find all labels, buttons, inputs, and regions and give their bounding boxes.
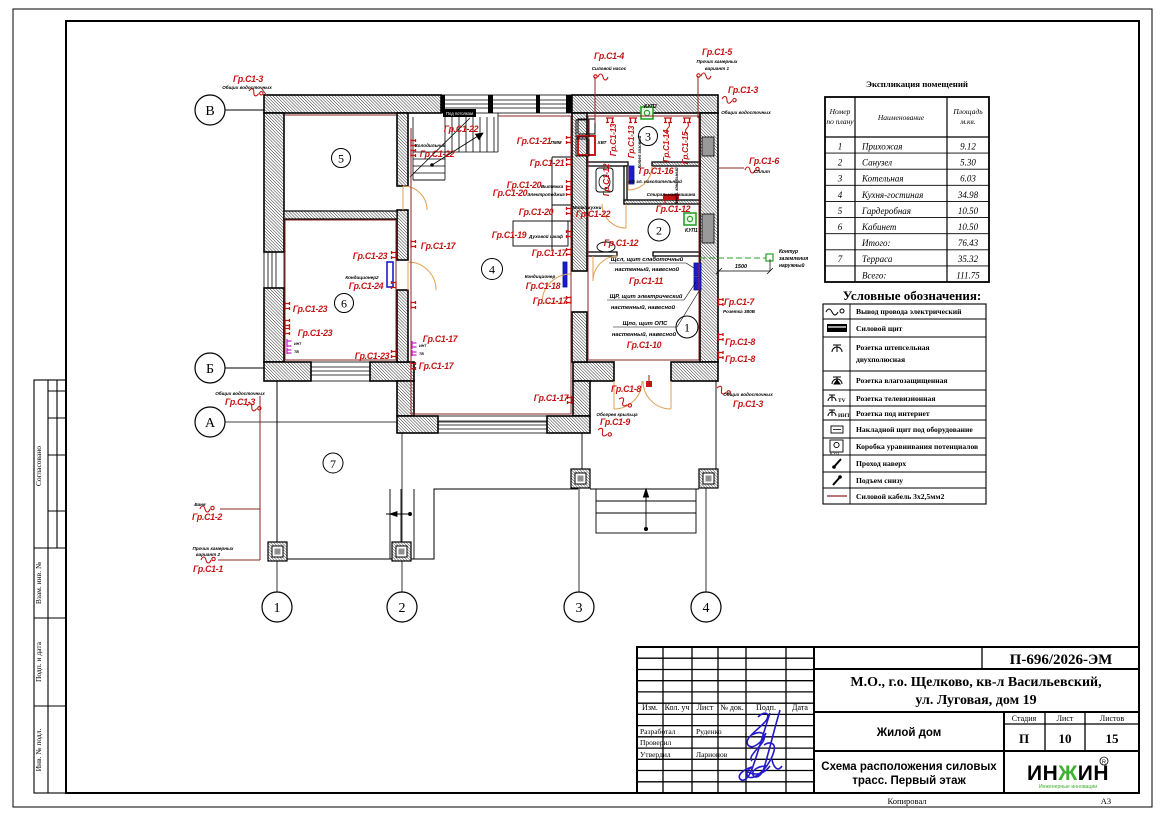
svg-text:1500: 1500 (735, 264, 747, 270)
svg-text:6: 6 (341, 297, 347, 311)
svg-text:Гр.С1-17: Гр.С1-17 (423, 334, 459, 344)
svg-text:Кол. уч: Кол. уч (665, 703, 690, 712)
svg-text:Баня: Баня (194, 502, 206, 507)
svg-text:2: 2 (838, 158, 843, 168)
svg-text:Силовой кабель 3х2,5мм2: Силовой кабель 3х2,5мм2 (856, 492, 945, 501)
svg-text:Гр.С1-22: Гр.С1-22 (576, 209, 611, 219)
svg-text:Котельная: Котельная (861, 174, 904, 184)
svg-text:№ док.: № док. (720, 703, 744, 712)
svg-text:настенный, навесной: настенный, навесной (611, 304, 676, 311)
svg-text:Вытяжка: Вытяжка (541, 184, 564, 189)
svg-text:Гр.С1-12: Гр.С1-12 (604, 238, 639, 248)
svg-text:Гр.С1-11: Гр.С1-11 (629, 276, 663, 286)
svg-text:Вент. канальный: Вент. канальный (674, 167, 679, 204)
svg-text:ТВ: ТВ (294, 350, 299, 354)
svg-text:Кондиционер: Кондиционер (525, 274, 556, 279)
svg-text:Общих водосточных: Общих водосточных (721, 109, 771, 115)
svg-text:111.75: 111.75 (956, 270, 980, 280)
svg-text:Подп. и дата: Подп. и дата (34, 641, 43, 682)
svg-text:ИНТ: ИНТ (294, 342, 302, 346)
svg-text:Контур: Контур (779, 249, 798, 255)
svg-text:Кабинет: Кабинет (861, 222, 897, 232)
svg-text:6.03: 6.03 (960, 174, 976, 184)
svg-text:Гр.С1-17: Гр.С1-17 (533, 296, 569, 306)
svg-text:Проход наверх: Проход наверх (856, 459, 906, 468)
svg-text:6: 6 (838, 222, 843, 232)
svg-text:Гр.С1-12: Гр.С1-12 (601, 163, 611, 196)
svg-text:вариант 1: вариант 1 (705, 66, 730, 71)
svg-text:Гр.С1-3: Гр.С1-3 (225, 397, 255, 407)
svg-text:Гр.С1-8: Гр.С1-8 (611, 384, 641, 394)
svg-text:вариант 2: вариант 2 (196, 552, 221, 557)
svg-text:А3: А3 (1101, 796, 1111, 806)
svg-text:Вывод провода электрический: Вывод провода электрический (856, 307, 962, 316)
svg-text:заземления: заземления (779, 256, 808, 262)
svg-text:Розетка телевизионная: Розетка телевизионная (856, 394, 935, 403)
svg-text:наружный: наружный (779, 262, 805, 269)
svg-text:Утвердил: Утвердил (640, 750, 671, 759)
svg-text:15: 15 (1106, 731, 1120, 746)
svg-text:Жилой дом: Жилой дом (876, 727, 942, 739)
svg-text:Общих водосточных: Общих водосточных (222, 84, 272, 90)
svg-text:Гр.С1-1: Гр.С1-1 (193, 564, 223, 574)
svg-text:3: 3 (837, 174, 843, 184)
svg-text:ХВТ: ХВТ (597, 140, 608, 145)
svg-text:Гр.С1-17: Гр.С1-17 (421, 241, 457, 251)
svg-text:Прихожая: Прихожая (861, 142, 902, 152)
svg-text:Гр.С1-13: Гр.С1-13 (608, 123, 618, 156)
svg-text:Гр.С1-17: Гр.С1-17 (534, 393, 570, 403)
svg-text:Силовой щит: Силовой щит (856, 324, 903, 333)
svg-text:Накладной щит под оборудование: Накладной щит под оборудование (856, 425, 973, 434)
svg-text:Подп.: Подп. (756, 703, 776, 712)
svg-text:Гр.С1-15: Гр.С1-15 (680, 131, 690, 164)
svg-text:3: 3 (576, 601, 583, 616)
svg-text:Щсл, щит слаботочный: Щсл, щит слаботочный (611, 256, 684, 263)
svg-text:Гр.С1-18: Гр.С1-18 (526, 281, 561, 291)
svg-text:2: 2 (656, 224, 662, 238)
svg-text:7: 7 (330, 457, 336, 471)
svg-text:Общих водосточных: Общих водосточных (215, 390, 265, 396)
svg-text:5.30: 5.30 (960, 158, 976, 168)
svg-text:Руденко: Руденко (696, 727, 722, 736)
svg-text:Гр.С1-3: Гр.С1-3 (728, 85, 758, 95)
svg-text:Гр.С1-23: Гр.С1-23 (298, 328, 333, 338)
svg-text:1: 1 (684, 321, 690, 335)
svg-text:Ларионов: Ларионов (696, 750, 728, 759)
svg-text:4: 4 (838, 190, 843, 200)
svg-text:Гр.С1-21: Гр.С1-21 (530, 158, 565, 168)
svg-text:Копировал: Копировал (887, 796, 927, 806)
svg-text:Прочих камерных: Прочих камерных (697, 59, 738, 64)
svg-text:Условные обозначения:: Условные обозначения: (843, 288, 982, 303)
svg-text:Прочих камерных: Прочих камерных (193, 546, 234, 551)
svg-text:Кондиционер2: Кондиционер2 (345, 275, 379, 280)
svg-text:Дата: Дата (792, 703, 808, 712)
svg-text:двухполюсная: двухполюсная (856, 355, 905, 364)
svg-text:Гр.С1-3: Гр.С1-3 (733, 399, 763, 409)
svg-text:Лист: Лист (697, 703, 714, 712)
svg-text:Кухня-гостиная: Кухня-гостиная (861, 190, 923, 200)
svg-text:Инженерные инновации: Инженерные инновации (1039, 784, 1097, 790)
svg-text:Коробка уравнивания потенциало: Коробка уравнивания потенциалов (856, 442, 978, 451)
svg-text:4: 4 (489, 263, 495, 277)
svg-text:ПММ: ПММ (551, 140, 562, 145)
svg-text:Силовой насос: Силовой насос (592, 65, 627, 71)
svg-text:Гр.С1-9: Гр.С1-9 (600, 417, 630, 427)
svg-text:2: 2 (399, 601, 406, 616)
svg-text:Гр.С1-16: Гр.С1-16 (639, 166, 674, 176)
svg-text:Розетка под интернет: Розетка под интернет (856, 409, 930, 418)
svg-text:Гр.С1-23: Гр.С1-23 (293, 304, 328, 314)
svg-text:А: А (205, 416, 216, 431)
svg-text:Щпо, щит ОПС: Щпо, щит ОПС (623, 321, 668, 327)
svg-text:Мойка кухни: Мойка кухни (573, 204, 602, 210)
svg-text:10.50: 10.50 (958, 206, 979, 216)
svg-text:Под потолком: Под потолком (446, 111, 473, 116)
svg-text:Розетка 380В: Розетка 380В (723, 309, 756, 314)
svg-text:Гр.С1-17: Гр.С1-17 (532, 248, 568, 258)
svg-text:ул. Луговая, дом 19: ул. Луговая, дом 19 (915, 693, 1036, 708)
svg-text:Гр.С1-23: Гр.С1-23 (355, 351, 390, 361)
svg-text:35.32: 35.32 (957, 254, 979, 264)
svg-text:Духовой шкаф: Духовой шкаф (528, 233, 563, 239)
svg-text:1: 1 (274, 601, 281, 616)
svg-text:Всего:: Всего: (862, 270, 886, 280)
svg-text:Обогрев крыльца: Обогрев крыльца (596, 411, 638, 417)
svg-text:10.50: 10.50 (958, 222, 979, 232)
svg-text:ЩР, щит электрический: ЩР, щит электрический (610, 293, 683, 300)
svg-text:м.кв.: м.кв. (959, 117, 975, 126)
svg-text:КУП: КУП (830, 451, 840, 456)
svg-text:Гр.С1-10: Гр.С1-10 (627, 340, 662, 350)
svg-text:настенный, навесной: настенный, навесной (615, 266, 680, 273)
svg-text:Стиральная машина: Стиральная машина (647, 192, 696, 197)
svg-text:Экспликация помещений: Экспликация помещений (866, 79, 968, 89)
svg-text:Гр.С1-6: Гр.С1-6 (749, 156, 779, 166)
svg-text:Гр.С1-4: Гр.С1-4 (594, 51, 624, 61)
svg-text:Гр.С1-2: Гр.С1-2 (192, 512, 222, 522)
svg-text:R: R (1102, 760, 1106, 766)
svg-text:Гр.С1-3: Гр.С1-3 (233, 74, 263, 84)
svg-text:Изм.: Изм. (642, 703, 658, 712)
svg-text:трасс. Первый этаж: трасс. Первый этаж (852, 775, 966, 787)
svg-text:Гр.С1-13: Гр.С1-13 (626, 125, 636, 158)
svg-text:Гр.С1-20: Гр.С1-20 (519, 207, 554, 217)
svg-text:Гр.С1-22: Гр.С1-22 (444, 124, 479, 134)
svg-text:Стадия: Стадия (1012, 714, 1037, 723)
svg-text:Инв. № подл.: Инв. № подл. (34, 729, 43, 772)
svg-text:Наименование: Наименование (877, 113, 925, 122)
svg-text:П-696/2026-ЭМ: П-696/2026-ЭМ (1010, 652, 1113, 668)
svg-text:Гр.С1-23: Гр.С1-23 (353, 251, 388, 261)
svg-text:Схема расположения силовых: Схема расположения силовых (821, 761, 997, 773)
svg-text:Подъем снизу: Подъем снизу (856, 476, 903, 485)
svg-text:КУП1: КУП1 (685, 228, 698, 234)
svg-text:Гр.С1-19: Гр.С1-19 (492, 230, 527, 240)
svg-text:Сплит: Сплит (754, 169, 770, 174)
svg-text:Площадь: Площадь (952, 107, 983, 116)
svg-text:TV: TV (838, 398, 846, 404)
svg-text:Б: Б (206, 362, 214, 377)
svg-text:настенный, навесной: настенный, навесной (612, 331, 677, 338)
svg-text:Гр.С1-17: Гр.С1-17 (419, 361, 455, 371)
svg-text:Розетка влагозащищенная: Розетка влагозащищенная (856, 376, 948, 385)
svg-text:Холодильник: Холодильник (414, 143, 446, 148)
svg-text:Гр.С1-7: Гр.С1-7 (724, 297, 755, 307)
svg-text:Гр.С1-14: Гр.С1-14 (661, 129, 671, 162)
svg-text:1: 1 (838, 142, 843, 152)
svg-text:Номер: Номер (829, 107, 851, 116)
svg-text:Гр.С1-8: Гр.С1-8 (725, 337, 755, 347)
svg-text:П: П (1019, 731, 1029, 746)
svg-text:Гр.С1-5: Гр.С1-5 (702, 47, 732, 57)
svg-text:10: 10 (1059, 731, 1072, 746)
svg-text:ТВ: ТВ (419, 352, 424, 356)
svg-text:76.43: 76.43 (958, 238, 979, 248)
svg-text:Гр.С1-24: Гр.С1-24 (349, 281, 384, 291)
svg-text:9.12: 9.12 (960, 142, 976, 152)
svg-text:В: В (205, 104, 214, 119)
svg-text:Листов: Листов (1100, 714, 1125, 723)
svg-text:34.98: 34.98 (957, 190, 979, 200)
svg-text:КУП2: КУП2 (644, 104, 657, 110)
svg-text:ИНЖИН: ИНЖИН (1027, 762, 1109, 785)
svg-text:Общих водосточных: Общих водосточных (723, 391, 773, 397)
svg-text:Розетка штепсельная: Розетка штепсельная (856, 343, 930, 352)
svg-text:Лист: Лист (1057, 714, 1074, 723)
svg-text:Электроподжиг: Электроподжиг (527, 192, 565, 197)
svg-text:М.О., г.о. Щелково, кв-л Васил: М.О., г.о. Щелково, кв-л Васильевский, (850, 675, 1101, 690)
svg-text:ИНТ: ИНТ (838, 413, 851, 419)
svg-text:5: 5 (838, 206, 843, 216)
svg-text:Взам. инв. №: Взам. инв. № (34, 562, 43, 604)
svg-text:Гр.С1-8: Гр.С1-8 (725, 354, 755, 364)
svg-text:ИНТ: ИНТ (419, 344, 427, 348)
svg-text:Гр.С1-21: Гр.С1-21 (517, 136, 552, 146)
svg-text:Гр.С1-22: Гр.С1-22 (420, 149, 455, 159)
svg-text:по плану: по плану (826, 117, 854, 126)
svg-text:Итого:: Итого: (861, 238, 891, 248)
svg-text:Разработал: Разработал (640, 727, 676, 736)
svg-text:Проверил: Проверил (640, 738, 672, 747)
svg-text:Гр.С1-20: Гр.С1-20 (493, 188, 528, 198)
svg-text:5: 5 (338, 152, 344, 166)
svg-text:Согласовано: Согласовано (34, 446, 43, 486)
svg-text:Терраса: Терраса (862, 254, 893, 264)
svg-text:7: 7 (838, 254, 843, 264)
svg-text:Санузел: Санузел (862, 158, 892, 168)
svg-text:Гардеробная: Гардеробная (861, 206, 911, 216)
svg-text:3: 3 (645, 130, 651, 144)
svg-text:4: 4 (703, 601, 710, 616)
